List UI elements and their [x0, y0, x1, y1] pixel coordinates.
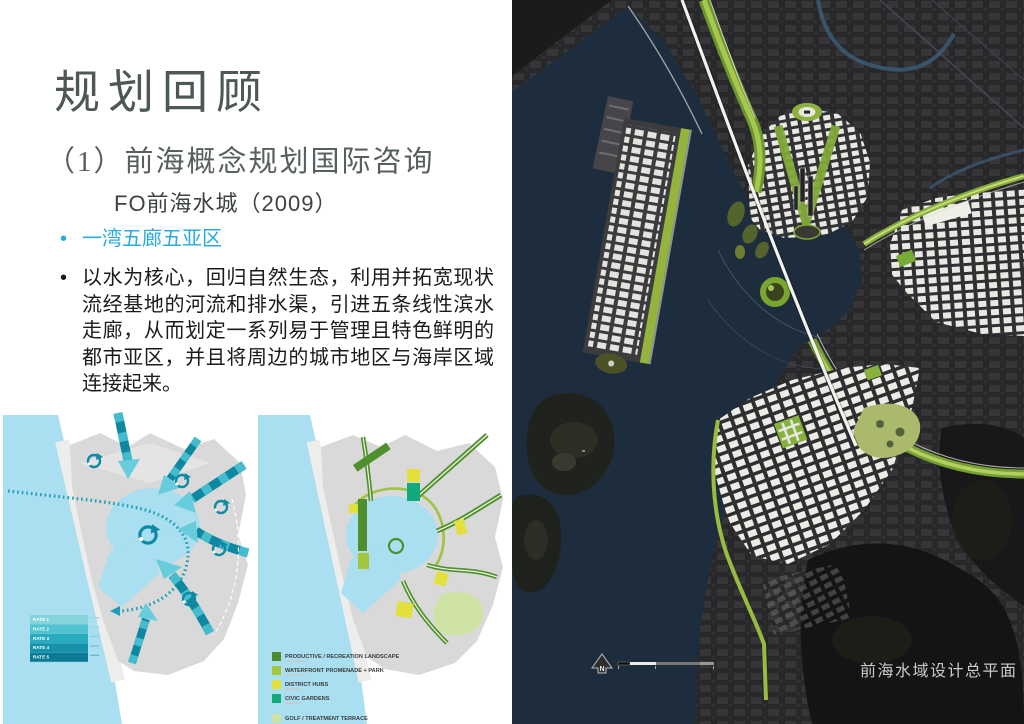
legend-label: PRODUCTIVE / RECREATION LANDSCAPE: [285, 654, 400, 660]
bullet-list: 一湾五廊五亚区 以水为核心，回归自然生态，利用并拓宽现状流经基地的河流和排水渠，…: [58, 226, 494, 410]
project-name: FO前海水城（2009）: [114, 186, 338, 218]
section-subtitle: （1）前海概念规划国际咨询: [46, 138, 435, 180]
svg-text:N: N: [599, 666, 604, 673]
masterplan-map: N 前海水域设计总平面: [512, 0, 1024, 724]
legend-label: RATE 5: [33, 655, 49, 660]
promenade-band: [358, 553, 369, 569]
legend-label: WATERFRONT PROMENADE + PARK: [285, 668, 384, 674]
vegetation: [832, 616, 912, 664]
legend-label: DISTRICT HUBS: [285, 682, 328, 688]
page-title: 规划回顾: [54, 56, 270, 122]
productive-band: [358, 499, 367, 551]
vegetation: [952, 480, 1012, 560]
flow-diagram: RATE 1 RATE 2 RATE 3 RATE 4 RATE 5: [0, 403, 250, 724]
legend-label: RATE 2: [33, 626, 49, 631]
landuse-diagram: PRODUCTIVE / RECREATION LANDSCAPE WATERF…: [255, 403, 510, 724]
legend-label: GOLF / TREATMENT TERRACE: [285, 716, 368, 722]
slide: 规划回顾 （1）前海概念规划国际咨询 FO前海水城（2009） 一湾五廊五亚区 …: [0, 0, 1024, 724]
legend-label: RATE 3: [33, 636, 49, 641]
bullet-description: 以水为核心，回归自然生态，利用并拓宽现状流经基地的河流和排水渠，引进五条线性滨水…: [58, 265, 494, 397]
legend-label: CIVIC GARDENS: [285, 696, 330, 702]
legend-label: RATE 4: [33, 645, 49, 650]
bullet-concept: 一湾五廊五亚区: [58, 226, 494, 252]
map-caption: 前海水域设计总平面: [860, 662, 1018, 680]
legend-label: RATE 1: [33, 617, 49, 622]
